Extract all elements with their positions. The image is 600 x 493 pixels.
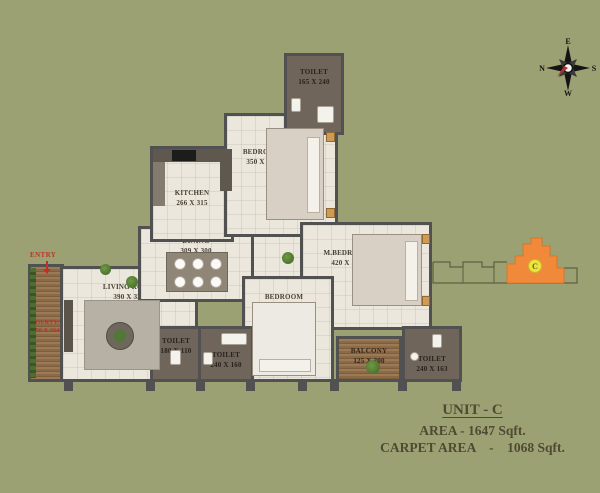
floor-plan-canvas: COURTYARD 150 X 364 LIVING ROOM 390 X 33… (0, 0, 600, 493)
pillar-stub (398, 379, 407, 391)
wc-glyph (203, 352, 213, 365)
pillow-glyph (405, 241, 418, 301)
kitchen-counter-glyph (153, 162, 165, 206)
pillar-stub (146, 379, 155, 391)
plant-glyph (282, 252, 294, 264)
plant-glyph (100, 264, 111, 275)
compass-label-top: E (565, 37, 570, 46)
plate-glyph (192, 258, 204, 270)
dining-table-glyph (166, 252, 228, 292)
area-line: AREA - 1647 Sqft. (355, 423, 590, 440)
nightstand-glyph (326, 132, 335, 142)
pillow-glyph (307, 137, 320, 213)
entry-label: ENTRY (30, 251, 56, 259)
wc-glyph (291, 98, 301, 112)
nightstand-glyph (422, 296, 430, 306)
room-dims: 240 X 163 (405, 365, 459, 375)
pillar-stub (246, 379, 255, 391)
washer-glyph (317, 106, 334, 123)
nightstand-glyph (326, 208, 335, 218)
compass-icon: E S W N (538, 36, 598, 96)
bathtub-glyph (221, 333, 247, 345)
plate-glyph (192, 276, 204, 288)
plate-glyph (174, 258, 186, 270)
key-plan: C (430, 226, 582, 298)
room-dims: 165 X 240 (287, 78, 341, 88)
plate-glyph (210, 276, 222, 288)
room-toilet-top: TOILET 165 X 240 (284, 53, 344, 135)
unit-title: UNIT - C (355, 402, 590, 419)
pillow-glyph (259, 359, 311, 372)
stove-glyph (172, 150, 196, 161)
room-name: TOILET (287, 68, 341, 78)
coffee-table-glyph (106, 322, 134, 350)
plate-glyph (210, 258, 222, 270)
wc-glyph (432, 334, 442, 348)
plant-glyph (366, 360, 380, 374)
hedge-glyph (30, 268, 36, 378)
plant-glyph (126, 276, 138, 288)
room-balcony: BALCONY 125 X 300 (336, 336, 402, 382)
nightstand-glyph (422, 234, 430, 244)
carpet-line: CARPET AREA - 1068 Sqft. (355, 440, 590, 457)
entry-arrow-icon (46, 261, 48, 269)
room-name: BALCONY (339, 347, 399, 357)
compass-label-left: N (539, 64, 545, 73)
wc-glyph (170, 350, 181, 365)
bed-glyph (252, 302, 316, 376)
compass-label-bottom: W (564, 89, 572, 96)
pillar-stub (452, 379, 461, 391)
pillar-stub (196, 379, 205, 391)
bed-glyph (266, 128, 324, 220)
tv-unit-glyph (64, 300, 73, 352)
compass-label-right: S (592, 64, 597, 73)
unit-badge-letter: C (532, 262, 538, 271)
pillar-stub (298, 379, 307, 391)
bed-glyph (352, 234, 422, 306)
plate-glyph (174, 276, 186, 288)
basin-glyph (410, 352, 419, 361)
room-label: TOILET 165 X 240 (287, 68, 341, 88)
pillar-stub (64, 379, 73, 391)
unit-info: UNIT - C AREA - 1647 Sqft. CARPET AREA -… (355, 402, 590, 457)
pillar-stub (330, 379, 339, 391)
fridge-glyph (220, 149, 232, 191)
